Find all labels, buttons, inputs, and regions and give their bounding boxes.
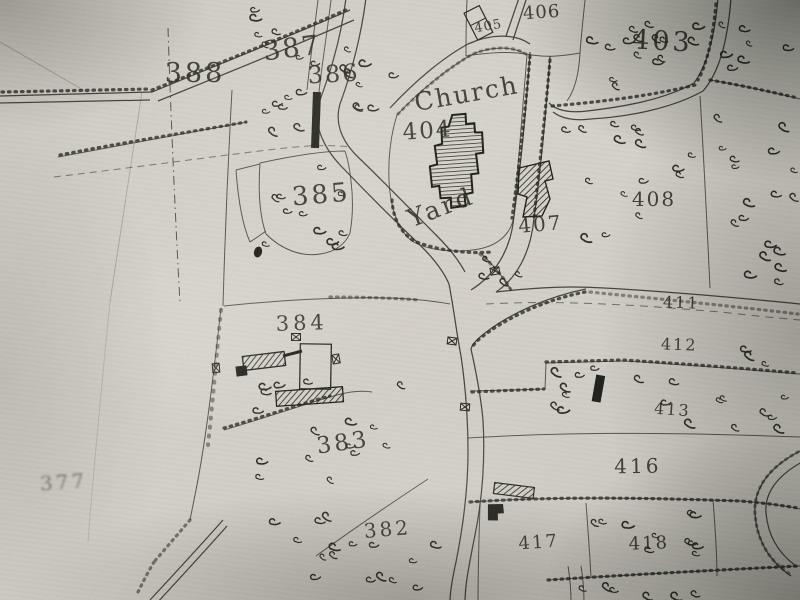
- parcel-label-386: 386: [307, 59, 360, 90]
- building-384-west-wing: [242, 351, 285, 370]
- parcel-labels: 388 387 386 385 384 383 382 377 Church Y…: [39, 1, 700, 555]
- parcel-label-406: 406: [522, 1, 561, 25]
- parcel-label-388: 388: [165, 58, 226, 89]
- parcel-label-417: 417: [518, 531, 560, 555]
- parcel-label-403: 403: [631, 24, 693, 58]
- building-417-house: [486, 502, 505, 522]
- building-384-annex: [235, 365, 247, 376]
- building-384-south-range: [276, 387, 344, 407]
- buildings: [235, 6, 605, 523]
- building-384-link: [283, 351, 302, 356]
- parcel-label-411: 411: [663, 292, 700, 312]
- parcel-label-418: 418: [628, 532, 669, 554]
- parcel-label-405: 405: [473, 17, 503, 37]
- parcel-label-404: 404: [402, 116, 454, 145]
- building-386: [311, 92, 321, 148]
- parcel-label-383: 383: [315, 427, 371, 460]
- parcel-label-382: 382: [363, 515, 412, 543]
- building-413: [592, 375, 606, 403]
- parcel-label-408: 408: [632, 187, 676, 211]
- parcel-label-377: 377: [39, 468, 88, 495]
- parcel-label-384: 384: [275, 310, 328, 336]
- parcel-label-407: 407: [517, 210, 563, 238]
- lone-tree-blob: [253, 246, 264, 259]
- building-417-barn: [493, 483, 534, 499]
- building-407: [518, 161, 553, 217]
- map-photograph: 388 387 386 385 384 383 382 377 Church Y…: [0, 0, 800, 600]
- parcel-label-416: 416: [614, 454, 662, 479]
- tree-symbols: [250, 6, 800, 600]
- parcel-label-412: 412: [661, 334, 698, 354]
- tithe-map-drawing: 388 387 386 385 384 383 382 377 Church Y…: [0, 0, 800, 600]
- churchyard-label-church: Church: [412, 70, 521, 117]
- parcel-label-413: 413: [653, 399, 691, 421]
- gate-icons: [212, 267, 500, 411]
- parcel-label-385: 385: [291, 178, 352, 213]
